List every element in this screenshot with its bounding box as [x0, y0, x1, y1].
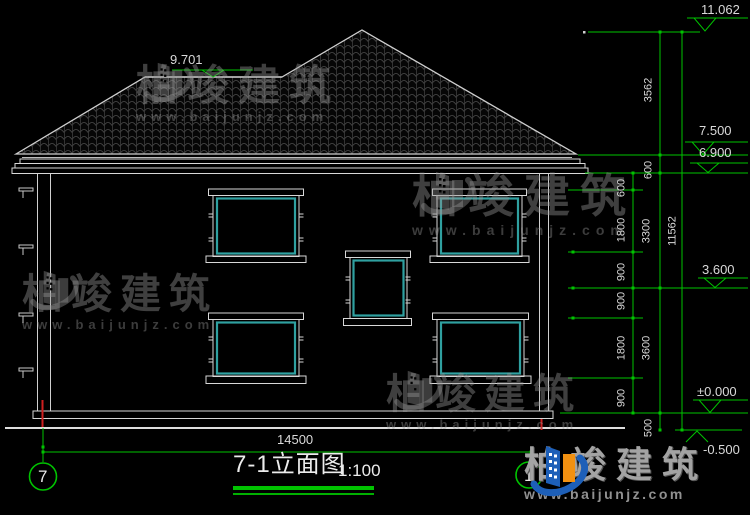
window-1f-right: [430, 313, 531, 384]
dim-900-1f-sill: 900: [617, 389, 628, 407]
hip-roof: [16, 30, 576, 154]
dim-600-opening: 600: [617, 179, 628, 197]
dim-3562: 3562: [644, 78, 655, 102]
dim-1800-1f: 1800: [617, 336, 628, 360]
title-underline-thick: [233, 486, 374, 490]
dim-600-floor: 600: [644, 161, 655, 179]
dim-3300: 3300: [642, 219, 653, 243]
view-title: 7-1立面图: [233, 452, 346, 478]
window-stair-middle: [344, 251, 412, 326]
dim-500: 500: [644, 419, 655, 437]
dim-3600: 3600: [642, 336, 653, 360]
level-eave-label: 7.500: [699, 124, 732, 137]
level-ridge-top-label: 11.062: [701, 3, 740, 16]
company-logo-icon: [524, 436, 588, 500]
level-roof-ridge-label: 9.701: [170, 53, 203, 66]
dim-900-1f-top: 900: [617, 292, 628, 310]
dim-11562: 11562: [668, 216, 679, 246]
axis-tick-left: [42, 400, 44, 427]
axis-bubble-7: 7: [38, 468, 47, 485]
ground-line: [5, 427, 625, 429]
company-logo: 柏竣建筑 www.baijunjz.com: [524, 436, 708, 502]
window-2f-left: [206, 189, 306, 263]
dim-900-2f-sill: 900: [617, 263, 628, 281]
level-floor1-label: ±0.000: [697, 385, 737, 398]
ridge-apex-dot: [583, 31, 586, 34]
overall-width-dim: 14500: [277, 433, 313, 446]
elevation-drawing-canvas: 9.701 11.062 7.500 6.900 3.600 ±0.000 -0…: [0, 0, 750, 515]
view-scale: 1:100: [338, 461, 381, 481]
axis-tick-right: [541, 419, 543, 430]
dim-1800-2f: 1800: [617, 218, 628, 242]
walls: [38, 174, 549, 411]
window-1f-left: [206, 313, 306, 384]
window-2f-right: [430, 189, 529, 263]
title-underline-thin: [233, 493, 374, 495]
eave-cornice: [12, 159, 588, 174]
plinth: [33, 411, 553, 419]
level-wall-top-label: 6.900: [699, 146, 732, 159]
level-floor2-label: 3.600: [702, 263, 735, 276]
level-ground-label: -0.500: [703, 443, 740, 456]
left-wall-sill-profiles: [19, 188, 33, 378]
